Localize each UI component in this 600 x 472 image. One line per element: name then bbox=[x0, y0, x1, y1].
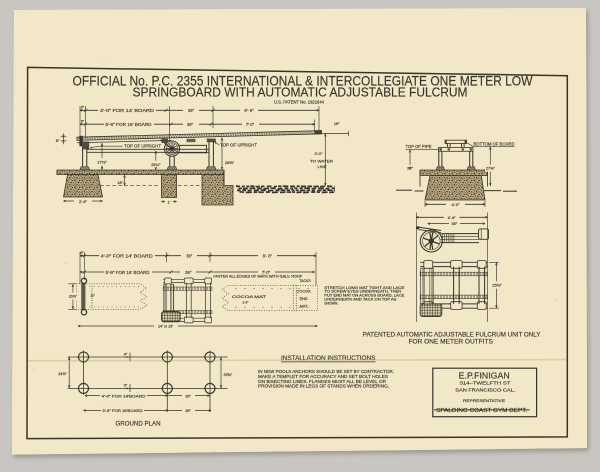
svg-text:28⅝″: 28⅝″ bbox=[225, 160, 235, 165]
svg-text:BOTTOM OF BOARD: BOTTOM OF BOARD bbox=[474, 141, 515, 146]
svg-text:5′-6″ FOR 16′BOARD: 5′-6″ FOR 16′BOARD bbox=[103, 409, 143, 413]
svg-text:36″: 36″ bbox=[185, 394, 191, 398]
svg-text:36″: 36″ bbox=[188, 108, 195, 113]
svg-text:8′- 6″: 8′- 6″ bbox=[263, 254, 273, 259]
svg-text:27⅜″: 27⅜″ bbox=[486, 165, 496, 170]
svg-text:5′-6″ FOR 16′ BOARD: 5′-6″ FOR 16′ BOARD bbox=[106, 122, 152, 127]
svg-text:4′-0″ FOR 14′ BOARD: 4′-0″ FOR 14′ BOARD bbox=[101, 254, 153, 259]
svg-text:27⅜″: 27⅜″ bbox=[97, 160, 107, 165]
svg-text:25⅜″: 25⅜″ bbox=[224, 373, 233, 377]
svg-text:2′-6″: 2′-6″ bbox=[79, 199, 88, 204]
svg-text:4′-0″ FOR 14′ BOARD: 4′-0″ FOR 14′ BOARD bbox=[100, 108, 154, 113]
svg-text:314–TWELFTH ST: 314–TWELFTH ST bbox=[460, 381, 511, 386]
svg-text:SHOWN.: SHOWN. bbox=[324, 301, 338, 305]
svg-text:END: END bbox=[300, 297, 308, 301]
svg-text:4′-4″: 4′-4″ bbox=[448, 215, 457, 220]
svg-text:16″: 16″ bbox=[334, 122, 340, 126]
svg-text:E.P.FINIGAN: E.P.FINIGAN bbox=[459, 370, 510, 380]
svg-text:14′ or 16′: 14′ or 16′ bbox=[158, 325, 173, 329]
svg-text:26¼″: 26¼″ bbox=[151, 162, 161, 167]
svg-text:3′-0″: 3′-0″ bbox=[315, 151, 324, 156]
svg-text:36″: 36″ bbox=[187, 122, 194, 127]
svg-text:COCOA: COCOA bbox=[297, 290, 311, 294]
svg-text:FOR ONE METER OUTFITS: FOR ONE METER OUTFITS bbox=[409, 338, 493, 345]
svg-text:36″: 36″ bbox=[186, 254, 193, 259]
svg-text:TACKS: TACKS bbox=[299, 279, 311, 283]
svg-text:SPALDING COAST GYM DEPT.: SPALDING COAST GYM DEPT. bbox=[436, 408, 527, 414]
svg-text:4′-0″: 4′-0″ bbox=[452, 202, 461, 207]
svg-text:7′-0″: 7′-0″ bbox=[246, 122, 255, 127]
svg-text:24⅜″: 24⅜″ bbox=[58, 372, 67, 376]
svg-text:4′-0″ FOR 14′BOARD: 4′-0″ FOR 14′BOARD bbox=[102, 394, 146, 398]
svg-text:COCOA MAT: COCOA MAT bbox=[232, 294, 267, 299]
svg-text:26″: 26″ bbox=[407, 165, 413, 170]
svg-text:25⅜″: 25⅜″ bbox=[492, 283, 502, 288]
svg-text:18″: 18″ bbox=[117, 181, 123, 185]
svg-text:INSTALLATION INSTRUCTIONS: INSTALLATION INSTRUCTIONS bbox=[281, 355, 376, 362]
svg-text:GROUND PLAN: GROUND PLAN bbox=[116, 421, 161, 428]
svg-text:36″: 36″ bbox=[451, 221, 457, 226]
svg-text:5′-6″ FOR 16′ BOARD: 5′-6″ FOR 16′ BOARD bbox=[106, 270, 150, 275]
svg-text:SPRINGBOARD WITH AUTOMATIC ADJ: SPRINGBOARD WITH AUTOMATIC ADJUSTABLE FU… bbox=[133, 85, 468, 100]
svg-text:REPRESENTATIVE: REPRESENTATIVE bbox=[463, 398, 505, 403]
svg-text:TOP OF UPRIGHT: TOP OF UPRIGHT bbox=[220, 142, 257, 147]
svg-text:TO WATER: TO WATER bbox=[310, 159, 333, 164]
svg-text:LINE: LINE bbox=[318, 164, 327, 169]
svg-text:2′-6″: 2′-6″ bbox=[243, 301, 249, 305]
svg-text:MAT: MAT bbox=[300, 305, 308, 309]
svg-text:1′: 1′ bbox=[168, 200, 171, 205]
svg-text:36″: 36″ bbox=[185, 409, 191, 413]
svg-text:20⅞″: 20⅞″ bbox=[69, 295, 78, 299]
svg-text:8′- 6″: 8′- 6″ bbox=[244, 108, 254, 113]
svg-text:TOP OF PIPE: TOP OF PIPE bbox=[406, 144, 432, 149]
svg-text:12″: 12″ bbox=[91, 294, 95, 298]
svg-text:PROVISION MADE IN LEGS OF STAN: PROVISION MADE IN LEGS OF STANDS WHEN OR… bbox=[258, 384, 389, 389]
svg-text:FASTEN ALL EDGES OF MATS WITH: FASTEN ALL EDGES OF MATS WITH GALV. ROOF bbox=[213, 274, 302, 278]
svg-text:SAN FRANCISCO CAL.: SAN FRANCISCO CAL. bbox=[455, 388, 515, 393]
svg-text:TOP OF UPRIGHT: TOP OF UPRIGHT bbox=[124, 144, 161, 149]
svg-text:U.S. PATENT No. 1921644: U.S. PATENT No. 1921644 bbox=[274, 100, 325, 105]
svg-text:36″: 36″ bbox=[185, 270, 192, 275]
